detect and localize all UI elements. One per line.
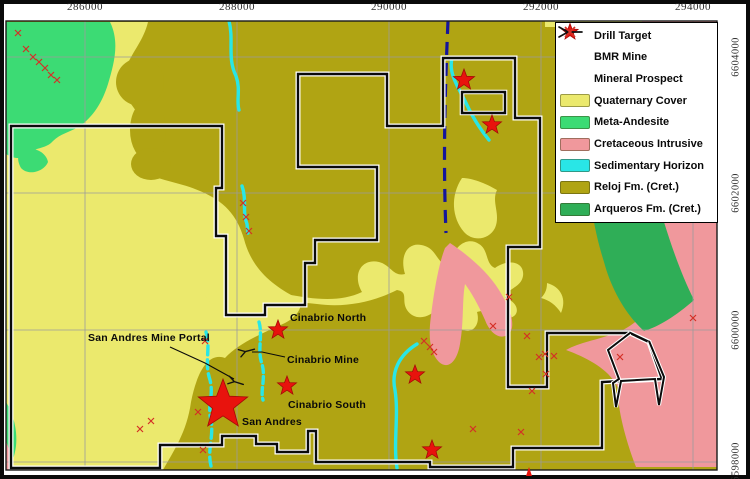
legend-item: BMR Mine <box>556 47 717 68</box>
axis-tick-easting: 286000 <box>67 1 103 13</box>
legend-patch-icon <box>556 203 594 216</box>
legend-item: Mineral Prospect <box>556 69 717 90</box>
legend-item: Meta-Andesite <box>556 112 717 133</box>
map-label-cinabrio-south: Cinabrio South <box>288 399 366 411</box>
reloj-lobe <box>131 148 171 180</box>
axis-tick-northing: 6598000 <box>731 442 742 479</box>
legend-item: Sedimentary Horizon <box>556 155 717 176</box>
axis-tick-northing: 6600000 <box>731 310 742 350</box>
legend-item-label: BMR Mine <box>594 51 647 63</box>
axis-tick-northing: 6602000 <box>731 173 742 213</box>
color-patch <box>560 159 590 172</box>
color-patch <box>560 138 590 151</box>
legend-patch-icon <box>556 181 594 194</box>
reloj-lobe <box>116 58 164 106</box>
legend-item-label: Sedimentary Horizon <box>594 160 704 172</box>
axis-tick-easting: 292000 <box>523 1 559 13</box>
legend-item-label: Arqueros Fm. (Cret.) <box>594 203 701 215</box>
map-label-san-andres-mine-portal: San Andres Mine Portal <box>88 332 210 344</box>
axis-tick-easting: 294000 <box>675 1 711 13</box>
map-label-san-andres: San Andres <box>242 416 302 428</box>
axis-tick-easting: 290000 <box>371 1 407 13</box>
legend-item-label: Reloj Fm. (Cret.) <box>594 181 679 193</box>
legend-patch-icon <box>556 94 594 107</box>
color-patch <box>560 116 590 129</box>
legend-item: Arqueros Fm. (Cret.) <box>556 199 717 220</box>
color-patch <box>560 203 590 216</box>
legend-item: Reloj Fm. (Cret.) <box>556 177 717 198</box>
legend-item-label: Quaternary Cover <box>594 95 687 107</box>
legend-patch-icon <box>556 138 594 151</box>
map-label-cinabrio-north: Cinabrio North <box>290 312 366 324</box>
color-patch <box>560 181 590 194</box>
axis-tick-northing: 6604000 <box>731 37 742 77</box>
legend-item-label: Drill Target <box>594 30 651 42</box>
geological-map-figure: 286000288000290000292000294000 660400066… <box>0 0 750 479</box>
legend-item-label: Mineral Prospect <box>594 73 683 85</box>
color-patch <box>560 94 590 107</box>
legend-item-label: Cretaceous Intrusive <box>594 138 703 150</box>
legend-item: Cretaceous Intrusive <box>556 134 717 155</box>
legend-patch-icon <box>556 116 594 129</box>
legend: Drill TargetBMR MineMineral ProspectQuat… <box>555 22 718 223</box>
axis-tick-easting: 288000 <box>219 1 255 13</box>
map-label-cinabrio-mine: Cinabrio Mine <box>287 354 359 366</box>
legend-item: Quaternary Cover <box>556 90 717 111</box>
legend-patch-icon <box>556 159 594 172</box>
legend-item-label: Meta-Andesite <box>594 116 669 128</box>
